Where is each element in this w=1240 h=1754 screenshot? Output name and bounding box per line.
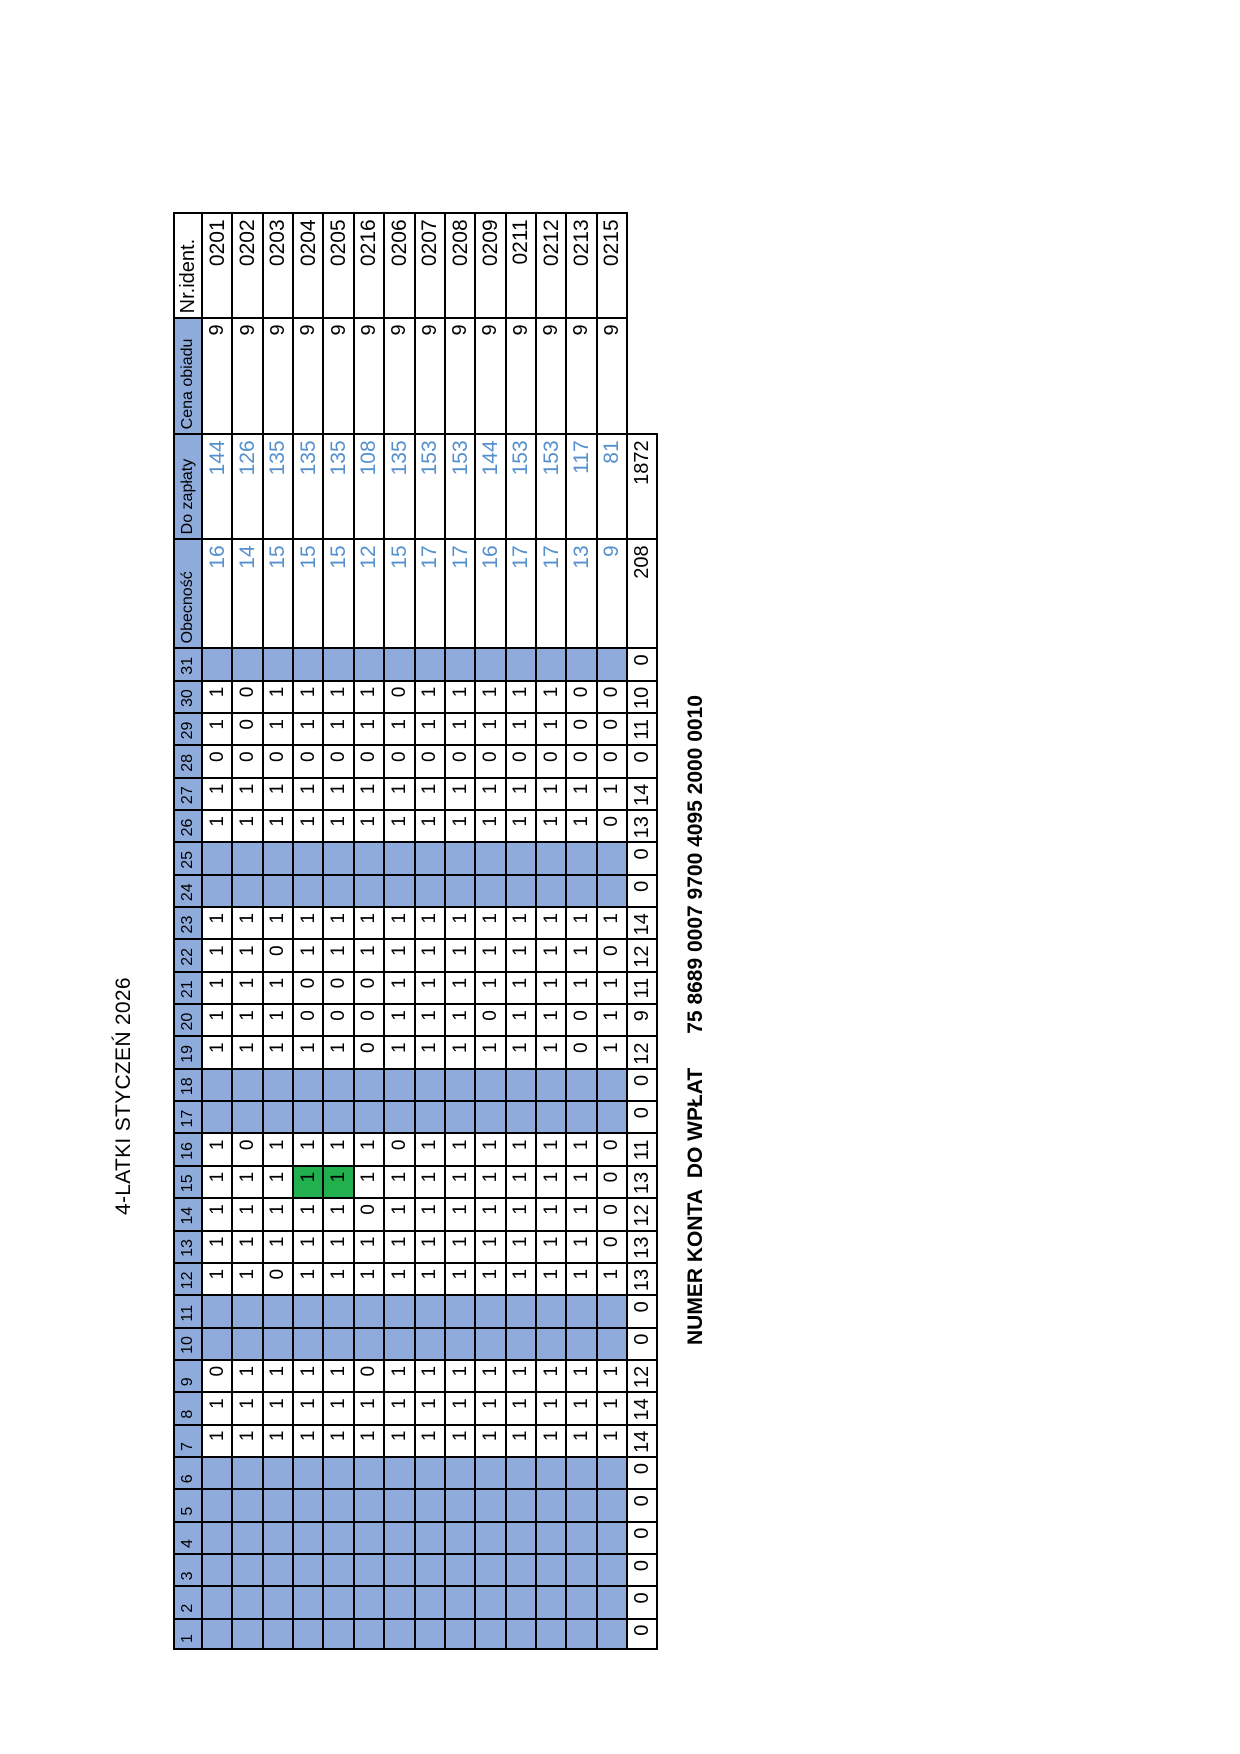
day-header-cell: 13: [173, 1230, 203, 1262]
closed-day-cell: [598, 1521, 628, 1553]
closed-day-cell: [416, 1456, 446, 1488]
presence-cell: 1: [537, 1035, 567, 1067]
presence-cell: 0: [567, 712, 597, 744]
closed-day-cell: [324, 1327, 354, 1359]
presence-cell: 1: [446, 1359, 476, 1391]
presence-cell: 1: [446, 1391, 476, 1423]
closed-day-cell: [324, 1456, 354, 1488]
presence-cell: 0: [598, 1197, 628, 1229]
closed-day-cell: [507, 841, 537, 873]
day-total-cell: 11: [628, 712, 658, 744]
presence-cell: 0: [598, 744, 628, 776]
presence-cell: 0: [598, 1230, 628, 1262]
presence-cell: 1: [416, 809, 446, 841]
child-id-cell: 0203: [264, 212, 294, 317]
presence-cell: 1: [355, 712, 385, 744]
closed-day-cell: [446, 1488, 476, 1520]
day-header-cell: 3: [173, 1553, 203, 1585]
presence-cell: 1: [507, 1230, 537, 1262]
attendance-cell: 16: [476, 538, 506, 647]
closed-day-cell: [355, 1521, 385, 1553]
presence-cell: 1: [233, 1424, 263, 1456]
presence-cell: 1: [385, 1391, 415, 1423]
attendance-cell: 17: [537, 538, 567, 647]
closed-day-cell: [355, 1585, 385, 1617]
presence-cell: 1: [294, 712, 324, 744]
presence-cell: 1: [476, 712, 506, 744]
day-total-cell: 12: [628, 938, 658, 970]
presence-cell: 1: [416, 777, 446, 809]
closed-day-cell: [264, 1585, 294, 1617]
presence-cell: 1: [233, 1262, 263, 1294]
presence-cell: 1: [416, 938, 446, 970]
due-cell: 135: [294, 433, 324, 538]
presence-cell: 0: [416, 744, 446, 776]
presence-cell: 0: [567, 1003, 597, 1035]
closed-day-cell: [264, 1553, 294, 1585]
closed-day-cell: [446, 874, 476, 906]
presence-cell: 1: [355, 1230, 385, 1262]
day-total-cell: 0: [628, 1488, 658, 1520]
presence-cell: 1: [476, 1424, 506, 1456]
presence-cell: 1: [537, 712, 567, 744]
presence-cell: 1: [446, 938, 476, 970]
day-total-cell: 0: [628, 1456, 658, 1488]
presence-cell: 1: [294, 1230, 324, 1262]
presence-cell: 1: [294, 1359, 324, 1391]
closed-day-cell: [264, 1100, 294, 1132]
closed-day-cell: [476, 1327, 506, 1359]
closed-day-cell: [416, 1294, 446, 1326]
presence-cell: 0: [598, 938, 628, 970]
presence-cell: 1: [264, 1359, 294, 1391]
closed-day-cell: [537, 1521, 567, 1553]
closed-day-cell: [324, 1521, 354, 1553]
closed-day-cell: [416, 1068, 446, 1100]
closed-day-cell: [598, 1553, 628, 1585]
presence-cell: 1: [416, 1133, 446, 1165]
closed-day-cell: [355, 1068, 385, 1100]
attendance-header-cell: Obecność: [173, 538, 203, 647]
day-header-cell: 20: [173, 1003, 203, 1035]
presence-cell: 1: [537, 777, 567, 809]
closed-day-cell: [203, 874, 233, 906]
closed-day-cell: [537, 1553, 567, 1585]
closed-day-cell: [203, 1553, 233, 1585]
presence-cell: 1: [476, 680, 506, 712]
closed-day-cell: [446, 841, 476, 873]
presence-cell: 1: [385, 938, 415, 970]
closed-day-cell: [324, 1618, 354, 1650]
presence-cell: 1: [537, 1197, 567, 1229]
presence-cell: 1: [537, 1165, 567, 1197]
day-total-cell: 0: [628, 1100, 658, 1132]
closed-day-cell: [537, 1068, 567, 1100]
presence-cell: 1: [446, 1197, 476, 1229]
presence-cell: 1: [355, 906, 385, 938]
closed-day-cell: [355, 1100, 385, 1132]
closed-day-cell: [203, 1618, 233, 1650]
presence-cell: 1: [294, 1424, 324, 1456]
presence-cell: 1: [507, 906, 537, 938]
presence-cell: 1: [567, 938, 597, 970]
child-id-cell: 0209: [476, 212, 506, 317]
due-cell: 135: [264, 433, 294, 538]
closed-day-cell: [203, 1585, 233, 1617]
closed-day-cell: [233, 1068, 263, 1100]
closed-day-cell: [416, 647, 446, 679]
presence-cell: 1: [203, 1391, 233, 1423]
presence-cell: 1: [446, 1165, 476, 1197]
presence-cell: 1: [264, 1133, 294, 1165]
closed-day-cell: [385, 874, 415, 906]
closed-day-cell: [233, 1553, 263, 1585]
child-id-cell: 0206: [385, 212, 415, 317]
presence-cell: 1: [294, 1262, 324, 1294]
presence-cell: 1: [355, 1165, 385, 1197]
presence-cell: 1: [446, 1133, 476, 1165]
closed-day-cell: [385, 1553, 415, 1585]
presence-cell: 0: [355, 1035, 385, 1067]
child-id-cell: 0207: [416, 212, 446, 317]
closed-day-cell: [567, 1618, 597, 1650]
presence-cell: 1: [567, 906, 597, 938]
closed-day-cell: [416, 841, 446, 873]
day-header-cell: 28: [173, 744, 203, 776]
presence-cell: 1: [385, 1197, 415, 1229]
day-total-cell: 0: [628, 1521, 658, 1553]
closed-day-cell: [385, 1618, 415, 1650]
presence-cell: 1: [446, 712, 476, 744]
presence-cell: 1: [385, 1424, 415, 1456]
price-cell: 9: [203, 317, 233, 433]
presence-cell: 0: [476, 1003, 506, 1035]
presence-cell: 1: [446, 680, 476, 712]
presence-cell: 1: [355, 1391, 385, 1423]
presence-cell: 0: [355, 744, 385, 776]
day-total-cell: 12: [628, 1197, 658, 1229]
day-header-cell: 24: [173, 874, 203, 906]
presence-cell: 0: [264, 1262, 294, 1294]
presence-cell: 1: [567, 1197, 597, 1229]
closed-day-cell: [476, 841, 506, 873]
child-id-cell: 0211: [507, 212, 537, 317]
closed-day-cell: [385, 1521, 415, 1553]
presence-cell: 0: [446, 744, 476, 776]
day-total-cell: 11: [628, 1133, 658, 1165]
presence-cell: 1: [203, 906, 233, 938]
closed-day-cell: [507, 1100, 537, 1132]
presence-cell: 1: [507, 680, 537, 712]
day-header-cell: 4: [173, 1521, 203, 1553]
presence-cell: 1: [416, 906, 446, 938]
due-cell: 126: [233, 433, 263, 538]
closed-day-cell: [507, 1553, 537, 1585]
presence-cell: 1: [264, 1391, 294, 1423]
presence-cell: 1: [476, 1262, 506, 1294]
account-number: 75 8689 0007 9700 4095 2000 0010: [684, 695, 707, 1034]
closed-day-cell: [233, 1456, 263, 1488]
presence-cell: 1: [507, 809, 537, 841]
presence-cell: 1: [264, 1424, 294, 1456]
day-total-cell: 0: [628, 1585, 658, 1617]
presence-cell: 1: [476, 906, 506, 938]
presence-cell: 0: [598, 680, 628, 712]
closed-day-cell: [324, 1585, 354, 1617]
presence-cell: 1: [233, 1359, 263, 1391]
closed-day-cell: [446, 647, 476, 679]
presence-cell: 0: [355, 1359, 385, 1391]
presence-cell: 1: [294, 938, 324, 970]
presence-cell: 1: [598, 1035, 628, 1067]
presence-cell: 0: [355, 1197, 385, 1229]
presence-cell: 1: [203, 809, 233, 841]
presence-cell: 1: [294, 1391, 324, 1423]
day-total-cell: 0: [628, 841, 658, 873]
closed-day-cell: [476, 1488, 506, 1520]
price-cell: 9: [416, 317, 446, 433]
presence-cell: 1: [355, 809, 385, 841]
day-header-cell: 17: [173, 1100, 203, 1132]
closed-day-cell: [446, 1294, 476, 1326]
closed-day-cell: [598, 1294, 628, 1326]
closed-day-cell: [567, 1553, 597, 1585]
closed-day-cell: [324, 841, 354, 873]
presence-cell: 1: [264, 971, 294, 1003]
presence-cell: 1: [416, 712, 446, 744]
closed-day-cell: [324, 1553, 354, 1585]
attendance-cell: 9: [598, 538, 628, 647]
account-label: NUMER KONTA DO WPŁAT: [684, 1068, 707, 1345]
closed-day-cell: [264, 1521, 294, 1553]
presence-cell: 1: [264, 1197, 294, 1229]
closed-day-cell: [507, 1488, 537, 1520]
closed-day-cell: [598, 841, 628, 873]
presence-cell: 1: [203, 1424, 233, 1456]
closed-day-cell: [598, 647, 628, 679]
closed-day-cell: [537, 874, 567, 906]
closed-day-cell: [385, 1327, 415, 1359]
closed-day-cell: [476, 874, 506, 906]
closed-day-cell: [507, 874, 537, 906]
closed-day-cell: [507, 1521, 537, 1553]
presence-cell: 0: [567, 680, 597, 712]
closed-day-cell: [203, 1456, 233, 1488]
closed-day-cell: [355, 1327, 385, 1359]
closed-day-cell: [507, 647, 537, 679]
due-cell: 153: [446, 433, 476, 538]
closed-day-cell: [537, 1456, 567, 1488]
presence-cell: 1: [203, 971, 233, 1003]
presence-cell: 1: [416, 1165, 446, 1197]
closed-day-cell: [233, 1327, 263, 1359]
presence-cell: 0: [294, 971, 324, 1003]
child-id-cell: 0205: [324, 212, 354, 317]
presence-cell: 1: [537, 1230, 567, 1262]
presence-cell: 1: [355, 1262, 385, 1294]
closed-day-cell: [476, 1553, 506, 1585]
day-header-cell: 27: [173, 777, 203, 809]
child-id-cell: 0216: [355, 212, 385, 317]
day-header-cell: 9: [173, 1359, 203, 1391]
attendance-cell: 17: [416, 538, 446, 647]
closed-day-cell: [567, 1294, 597, 1326]
day-header-cell: 15: [173, 1165, 203, 1197]
day-header-cell: 26: [173, 809, 203, 841]
price-cell: 9: [537, 317, 567, 433]
day-header-cell: 2: [173, 1585, 203, 1617]
presence-cell: 1: [324, 1230, 354, 1262]
presence-cell: 1: [507, 712, 537, 744]
day-total-cell: 0: [628, 1294, 658, 1326]
presence-cell: 1: [324, 777, 354, 809]
due-cell: 108: [355, 433, 385, 538]
presence-cell: 1: [476, 1391, 506, 1423]
closed-day-cell: [264, 1294, 294, 1326]
presence-cell: 1: [476, 777, 506, 809]
id-header-cell: Nr.ident.: [173, 212, 203, 317]
due-cell: 135: [324, 433, 354, 538]
closed-day-cell: [476, 1068, 506, 1100]
price-cell: 9: [233, 317, 263, 433]
presence-cell: 0: [598, 1133, 628, 1165]
presence-cell: 1: [446, 1230, 476, 1262]
attendance-total-cell: 208: [628, 538, 658, 647]
day-header-cell: 12: [173, 1262, 203, 1294]
day-total-cell: 14: [628, 906, 658, 938]
closed-day-cell: [385, 1068, 415, 1100]
closed-day-cell: [446, 1068, 476, 1100]
closed-day-cell: [567, 874, 597, 906]
presence-cell: 1: [598, 1359, 628, 1391]
day-header-cell: 21: [173, 971, 203, 1003]
closed-day-cell: [446, 1618, 476, 1650]
closed-day-cell: [567, 1585, 597, 1617]
presence-cell: 1: [416, 1230, 446, 1262]
presence-cell: 1: [233, 1165, 263, 1197]
closed-day-cell: [294, 1585, 324, 1617]
presence-cell: 1: [598, 1424, 628, 1456]
closed-day-cell: [385, 1488, 415, 1520]
presence-cell: 1: [294, 777, 324, 809]
presence-cell: 1: [324, 680, 354, 712]
closed-day-cell: [294, 1553, 324, 1585]
closed-day-cell: [567, 1068, 597, 1100]
presence-cell: 1: [507, 777, 537, 809]
presence-cell: 1: [264, 1230, 294, 1262]
presence-cell: 1: [233, 971, 263, 1003]
presence-cell: 1: [416, 1359, 446, 1391]
closed-day-cell: [294, 1488, 324, 1520]
closed-day-cell: [598, 1618, 628, 1650]
attendance-cell: 13: [567, 538, 597, 647]
presence-cell: 0: [598, 1165, 628, 1197]
presence-cell: 1: [598, 906, 628, 938]
day-header-cell: 23: [173, 906, 203, 938]
presence-cell: 1: [507, 971, 537, 1003]
day-header-cell: 6: [173, 1456, 203, 1488]
presence-cell: 1: [233, 1230, 263, 1262]
attendance-cell: 15: [294, 538, 324, 647]
day-header-cell: 22: [173, 938, 203, 970]
closed-day-cell: [385, 1294, 415, 1326]
closed-day-cell: [355, 1553, 385, 1585]
page: 4-LATKI STYCZEŃ 2026 1234567891011121314…: [0, 0, 1240, 1754]
price-cell: 9: [507, 317, 537, 433]
presence-cell: 1: [264, 809, 294, 841]
presence-cell: 1: [233, 938, 263, 970]
day-header-cell: 18: [173, 1068, 203, 1100]
presence-cell: 1: [537, 680, 567, 712]
presence-cell: 1: [446, 809, 476, 841]
closed-day-cell: [233, 1521, 263, 1553]
attendance-cell: 15: [385, 538, 415, 647]
presence-cell: 1: [416, 1424, 446, 1456]
presence-cell: 1: [416, 1391, 446, 1423]
price-cell: 9: [567, 317, 597, 433]
presence-cell: 1: [507, 1165, 537, 1197]
presence-cell: 1: [507, 1035, 537, 1067]
closed-day-cell: [537, 841, 567, 873]
day-header-cell: 1: [173, 1618, 203, 1650]
day-header-cell: 11: [173, 1294, 203, 1326]
price-cell: 9: [598, 317, 628, 433]
presence-cell: 1: [567, 1359, 597, 1391]
closed-day-cell: [598, 1068, 628, 1100]
presence-cell: 1: [537, 1391, 567, 1423]
presence-cell: 1: [598, 1262, 628, 1294]
closed-day-cell: [446, 1100, 476, 1132]
closed-day-cell: [476, 1521, 506, 1553]
presence-cell: 1: [537, 1262, 567, 1294]
closed-day-cell: [294, 1327, 324, 1359]
presence-cell: 1: [598, 1391, 628, 1423]
presence-cell: 1: [537, 1003, 567, 1035]
presence-cell: 0: [476, 744, 506, 776]
presence-cell: 1: [598, 1003, 628, 1035]
presence-cell: 1: [537, 1359, 567, 1391]
day-total-cell: 0: [628, 1618, 658, 1650]
closed-day-cell: [294, 1456, 324, 1488]
attendance-cell: 16: [203, 538, 233, 647]
closed-day-cell: [264, 647, 294, 679]
day-total-cell: 14: [628, 777, 658, 809]
presence-cell: 1: [233, 809, 263, 841]
closed-day-cell: [294, 1068, 324, 1100]
closed-day-cell: [476, 1294, 506, 1326]
presence-cell: 1: [355, 680, 385, 712]
closed-day-cell: [567, 1327, 597, 1359]
due-cell: 135: [385, 433, 415, 538]
closed-day-cell: [598, 874, 628, 906]
closed-day-cell: [446, 1521, 476, 1553]
closed-day-cell: [385, 1456, 415, 1488]
child-id-cell: 0213: [567, 212, 597, 317]
closed-day-cell: [355, 1456, 385, 1488]
presence-cell: 0: [385, 1133, 415, 1165]
closed-day-cell: [233, 874, 263, 906]
presence-cell: 1: [203, 1197, 233, 1229]
presence-cell: 1: [507, 1197, 537, 1229]
presence-cell: 0: [233, 680, 263, 712]
day-header-cell: 30: [173, 680, 203, 712]
due-cell: 153: [507, 433, 537, 538]
closed-day-cell: [598, 1327, 628, 1359]
closed-day-cell: [385, 841, 415, 873]
closed-day-cell: [507, 1294, 537, 1326]
day-total-cell: 0: [628, 647, 658, 679]
closed-day-cell: [567, 1456, 597, 1488]
